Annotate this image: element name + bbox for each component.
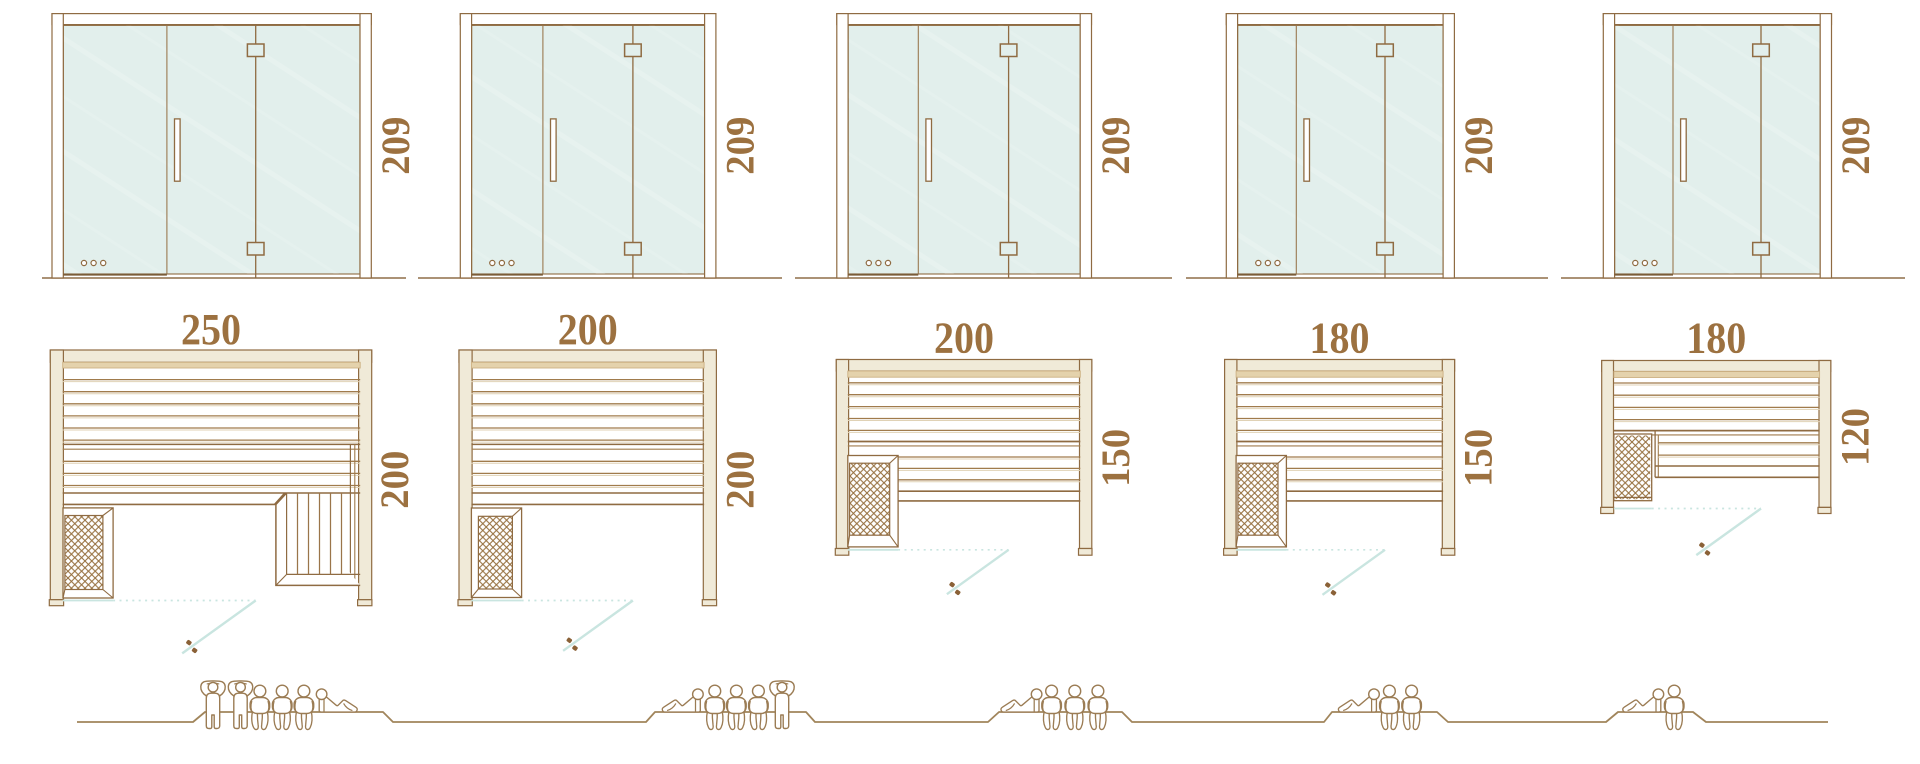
svg-text:209: 209 <box>1833 117 1878 175</box>
svg-text:200: 200 <box>558 305 618 354</box>
svg-text:200: 200 <box>718 451 763 509</box>
svg-text:180: 180 <box>1686 314 1746 363</box>
svg-text:209: 209 <box>1456 117 1501 175</box>
svg-text:200: 200 <box>372 451 417 509</box>
svg-text:209: 209 <box>1093 117 1138 175</box>
svg-text:250: 250 <box>181 305 241 354</box>
svg-text:209: 209 <box>717 117 762 175</box>
svg-text:120: 120 <box>1833 408 1878 466</box>
svg-text:150: 150 <box>1093 429 1138 487</box>
svg-text:209: 209 <box>373 117 418 175</box>
svg-text:180: 180 <box>1310 314 1370 363</box>
svg-text:150: 150 <box>1456 429 1501 487</box>
svg-text:200: 200 <box>934 314 994 363</box>
